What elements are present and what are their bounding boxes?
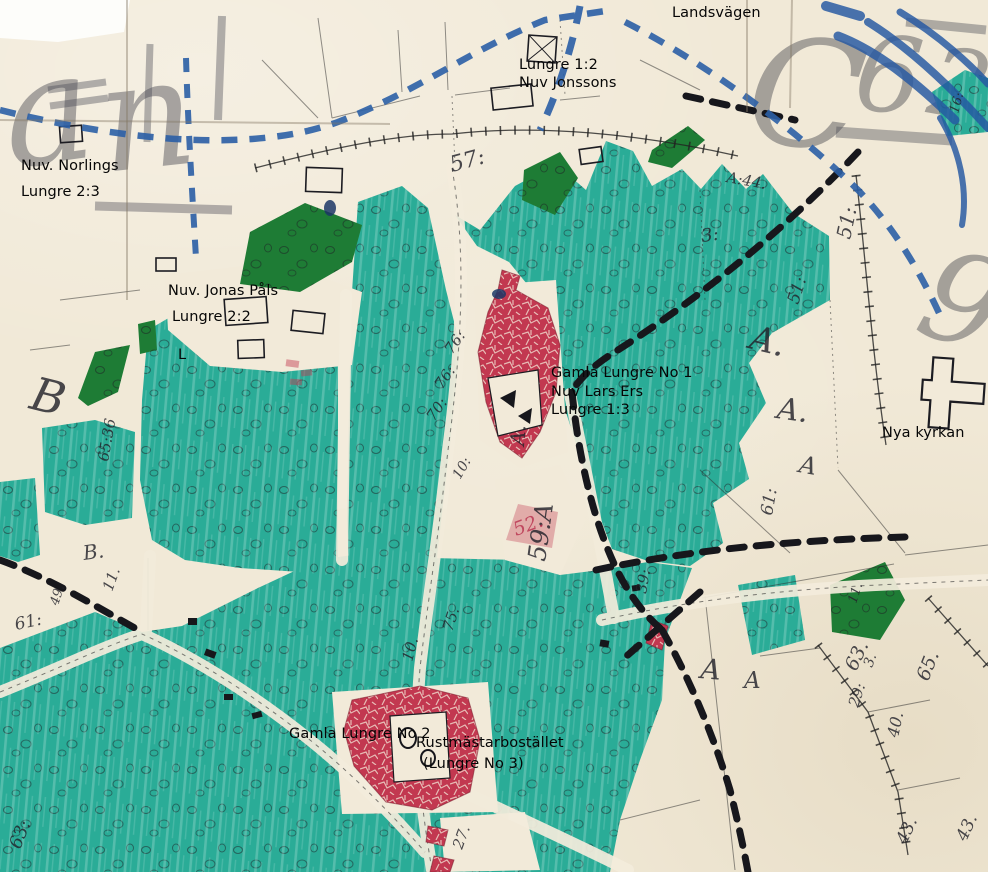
label-jonas-pals-1: Nuv. Jonas Påls [168, 283, 278, 300]
label-gamla-no2: Gamla Lungre No 2 [289, 726, 431, 743]
label-rustmastar-1: Rustmästarbostället [416, 735, 564, 752]
background-letter: 6 [849, 12, 928, 140]
label-rustmastar-2: (Lungre No 3) [423, 756, 524, 773]
label-lars-ers-2: Nuv Lars Ers [551, 384, 643, 401]
label-norlings-2: Lungre 2:3 [21, 184, 100, 201]
label-jonssons-2: Nuv Jonssons [519, 75, 617, 92]
scanned-village-map: a n C 6 2 9 [0, 0, 988, 872]
label-landsvagen: Landsvägen [672, 5, 761, 22]
hw-letter: A [742, 668, 761, 694]
label-l-mark: L [178, 347, 186, 364]
label-nya-kyrkan: Nya kyrkan [882, 425, 965, 442]
hw-letter: B. [80, 538, 105, 565]
hw-number: 3: [700, 224, 720, 247]
label-lars-ers-3: Lungre 1:3 [551, 402, 630, 419]
label-jonas-pals-2: Lungre 2:2 [172, 309, 251, 326]
hw-letter: A. [505, 424, 531, 449]
label-jonssons-1: Lungre 1:2 [519, 57, 598, 74]
label-lars-ers-1: Gamla Lungre No 1 [551, 365, 693, 382]
label-norlings-1: Nuv. Norlings [21, 158, 119, 175]
